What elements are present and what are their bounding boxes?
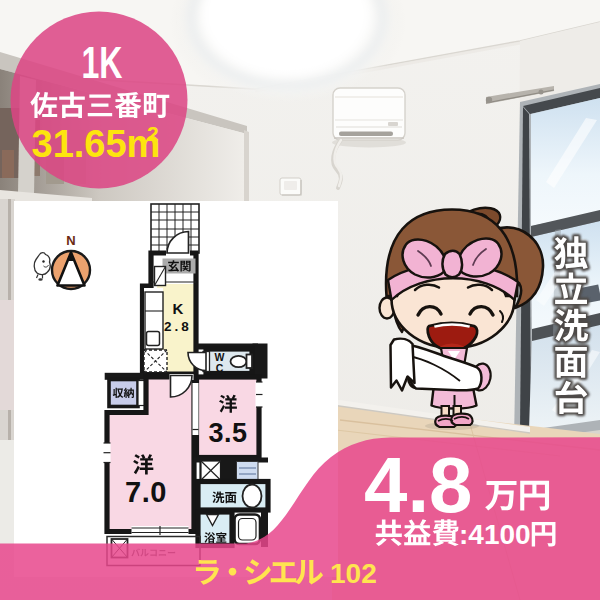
svg-text:4.8: 4.8 <box>364 441 472 529</box>
svg-text:1K: 1K <box>82 38 123 87</box>
svg-text::4100: :4100 <box>459 519 531 550</box>
svg-text:31.65m: 31.65m <box>32 123 161 165</box>
svg-text:102: 102 <box>330 558 377 589</box>
svg-text:2: 2 <box>147 122 159 145</box>
